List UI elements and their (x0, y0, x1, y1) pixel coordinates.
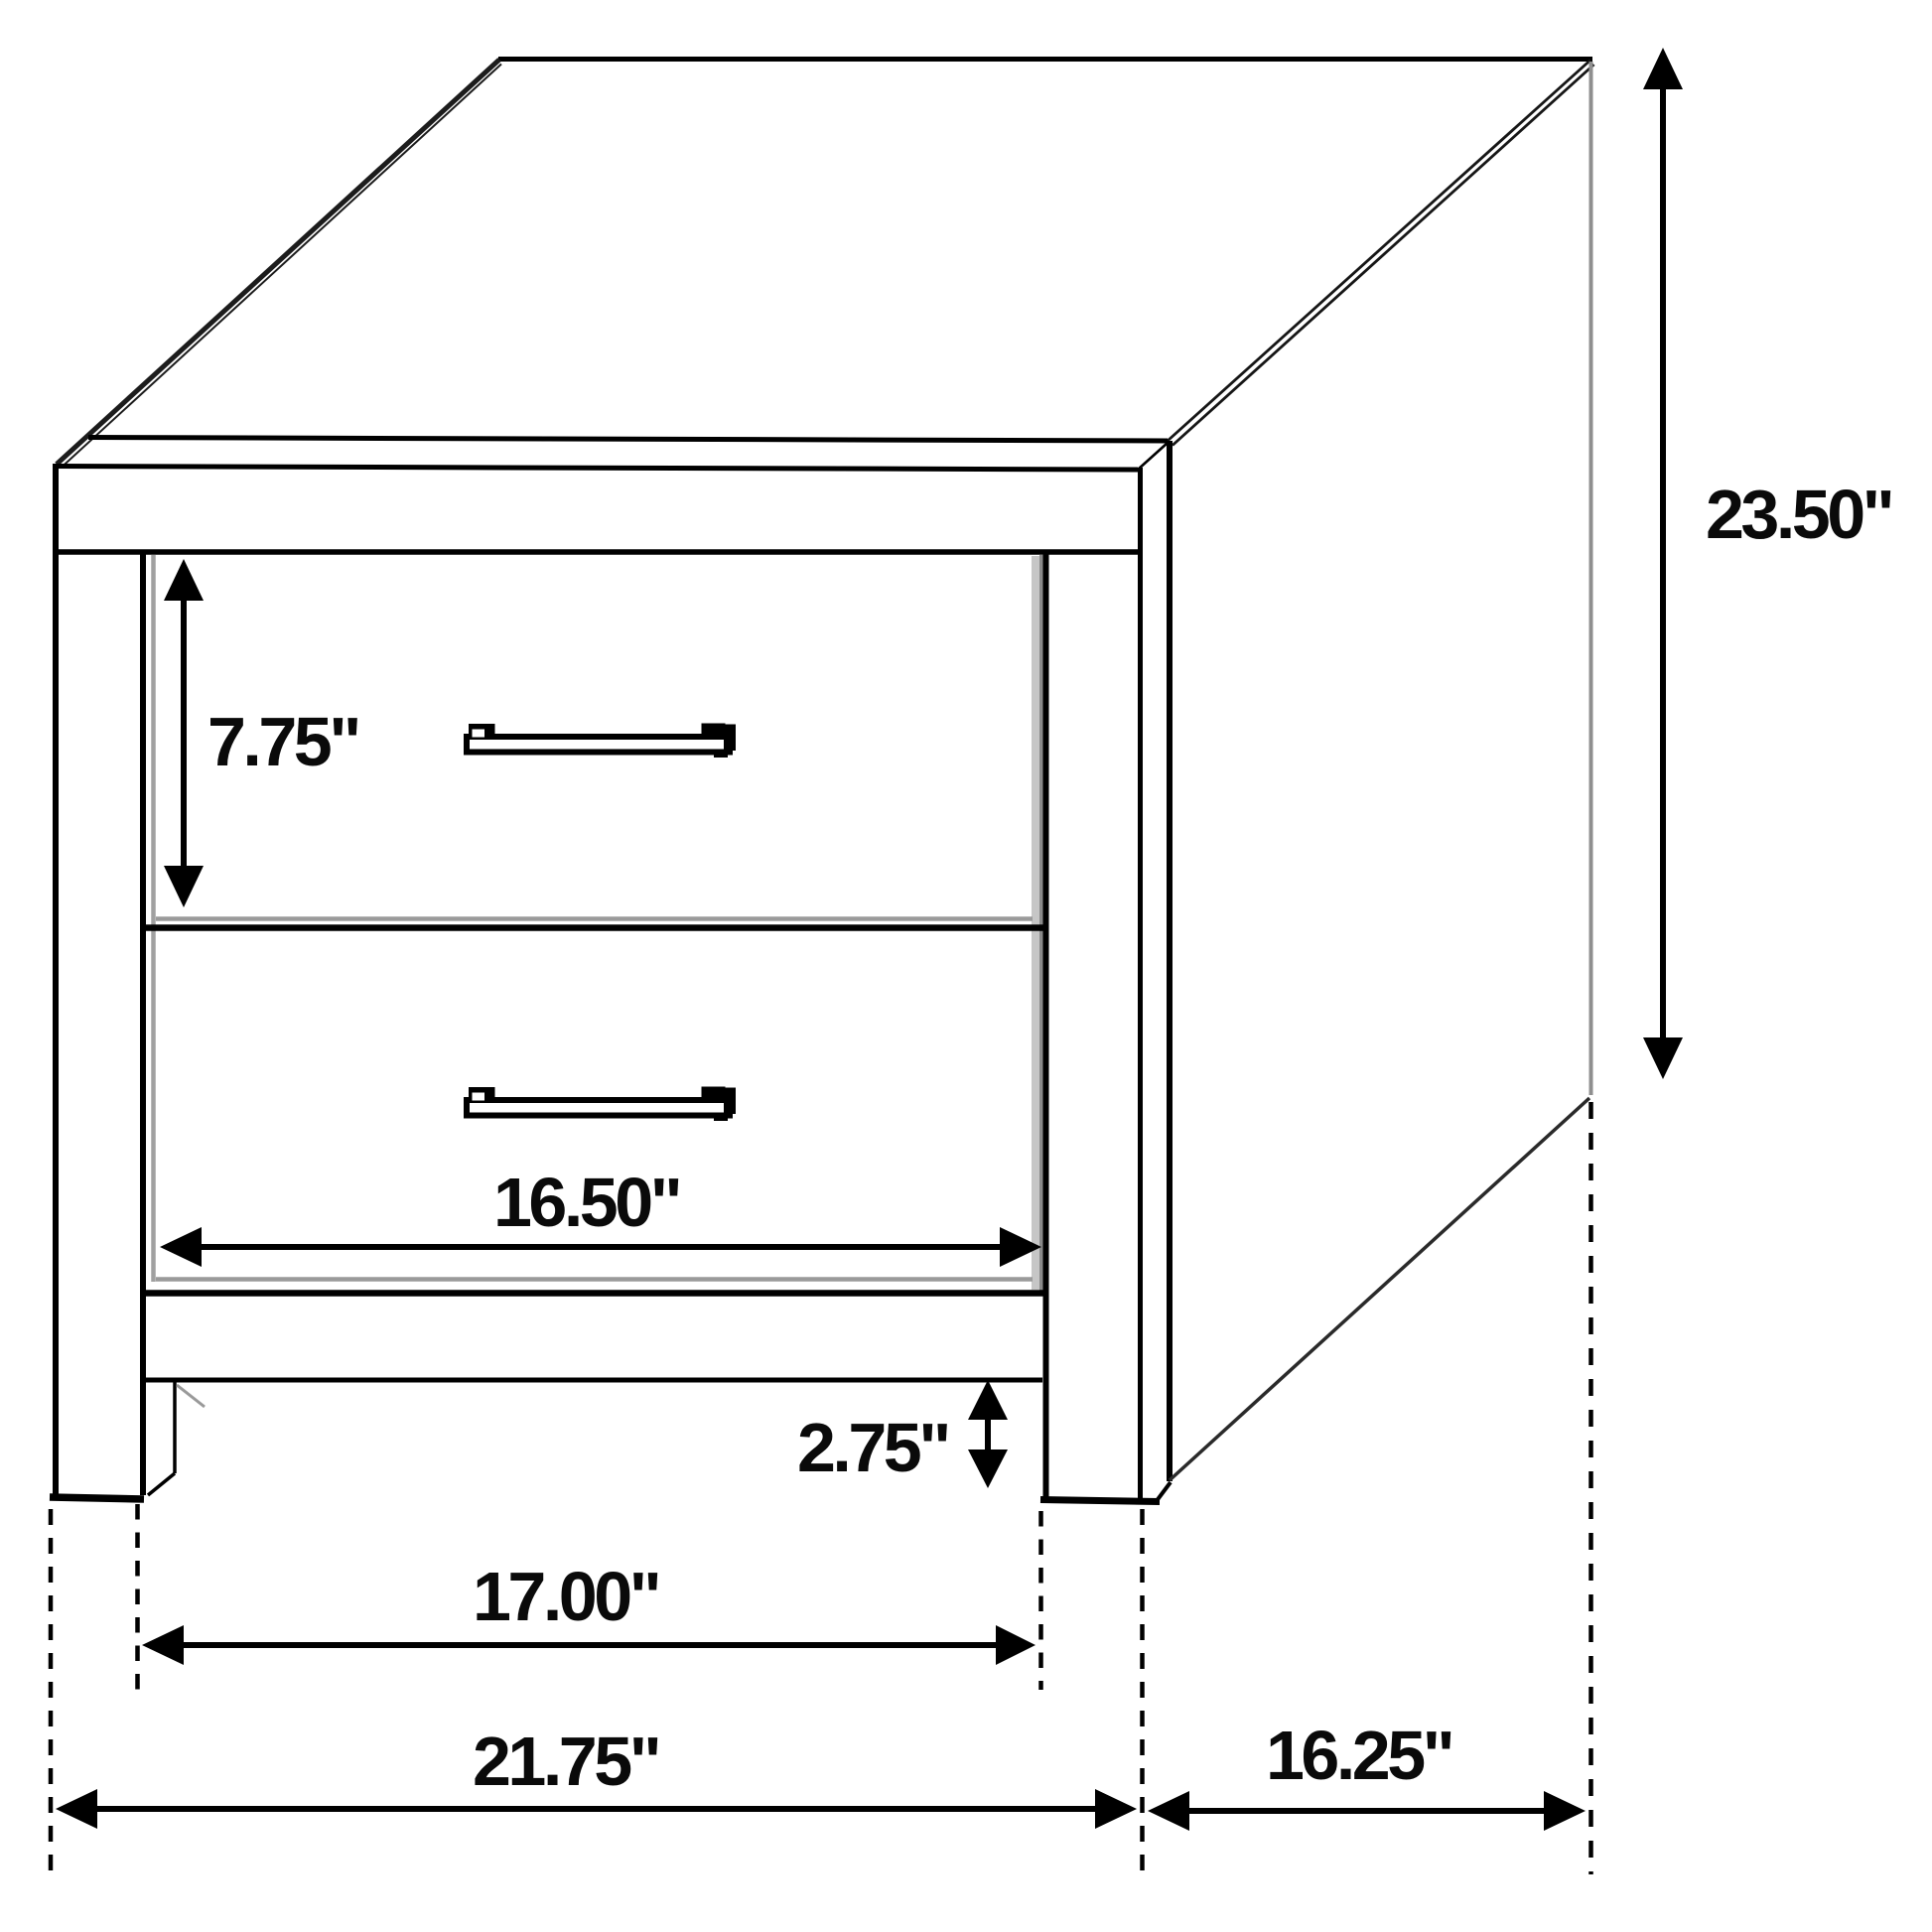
svg-text:7.75": 7.75" (207, 703, 358, 780)
svg-text:21.75": 21.75" (473, 1723, 658, 1800)
svg-text:16.25": 16.25" (1266, 1717, 1451, 1794)
svg-text:17.00": 17.00" (473, 1558, 658, 1635)
svg-text:2.75": 2.75" (797, 1409, 948, 1486)
svg-text:23.50": 23.50" (1706, 476, 1891, 553)
svg-text:16.50": 16.50" (493, 1164, 679, 1241)
